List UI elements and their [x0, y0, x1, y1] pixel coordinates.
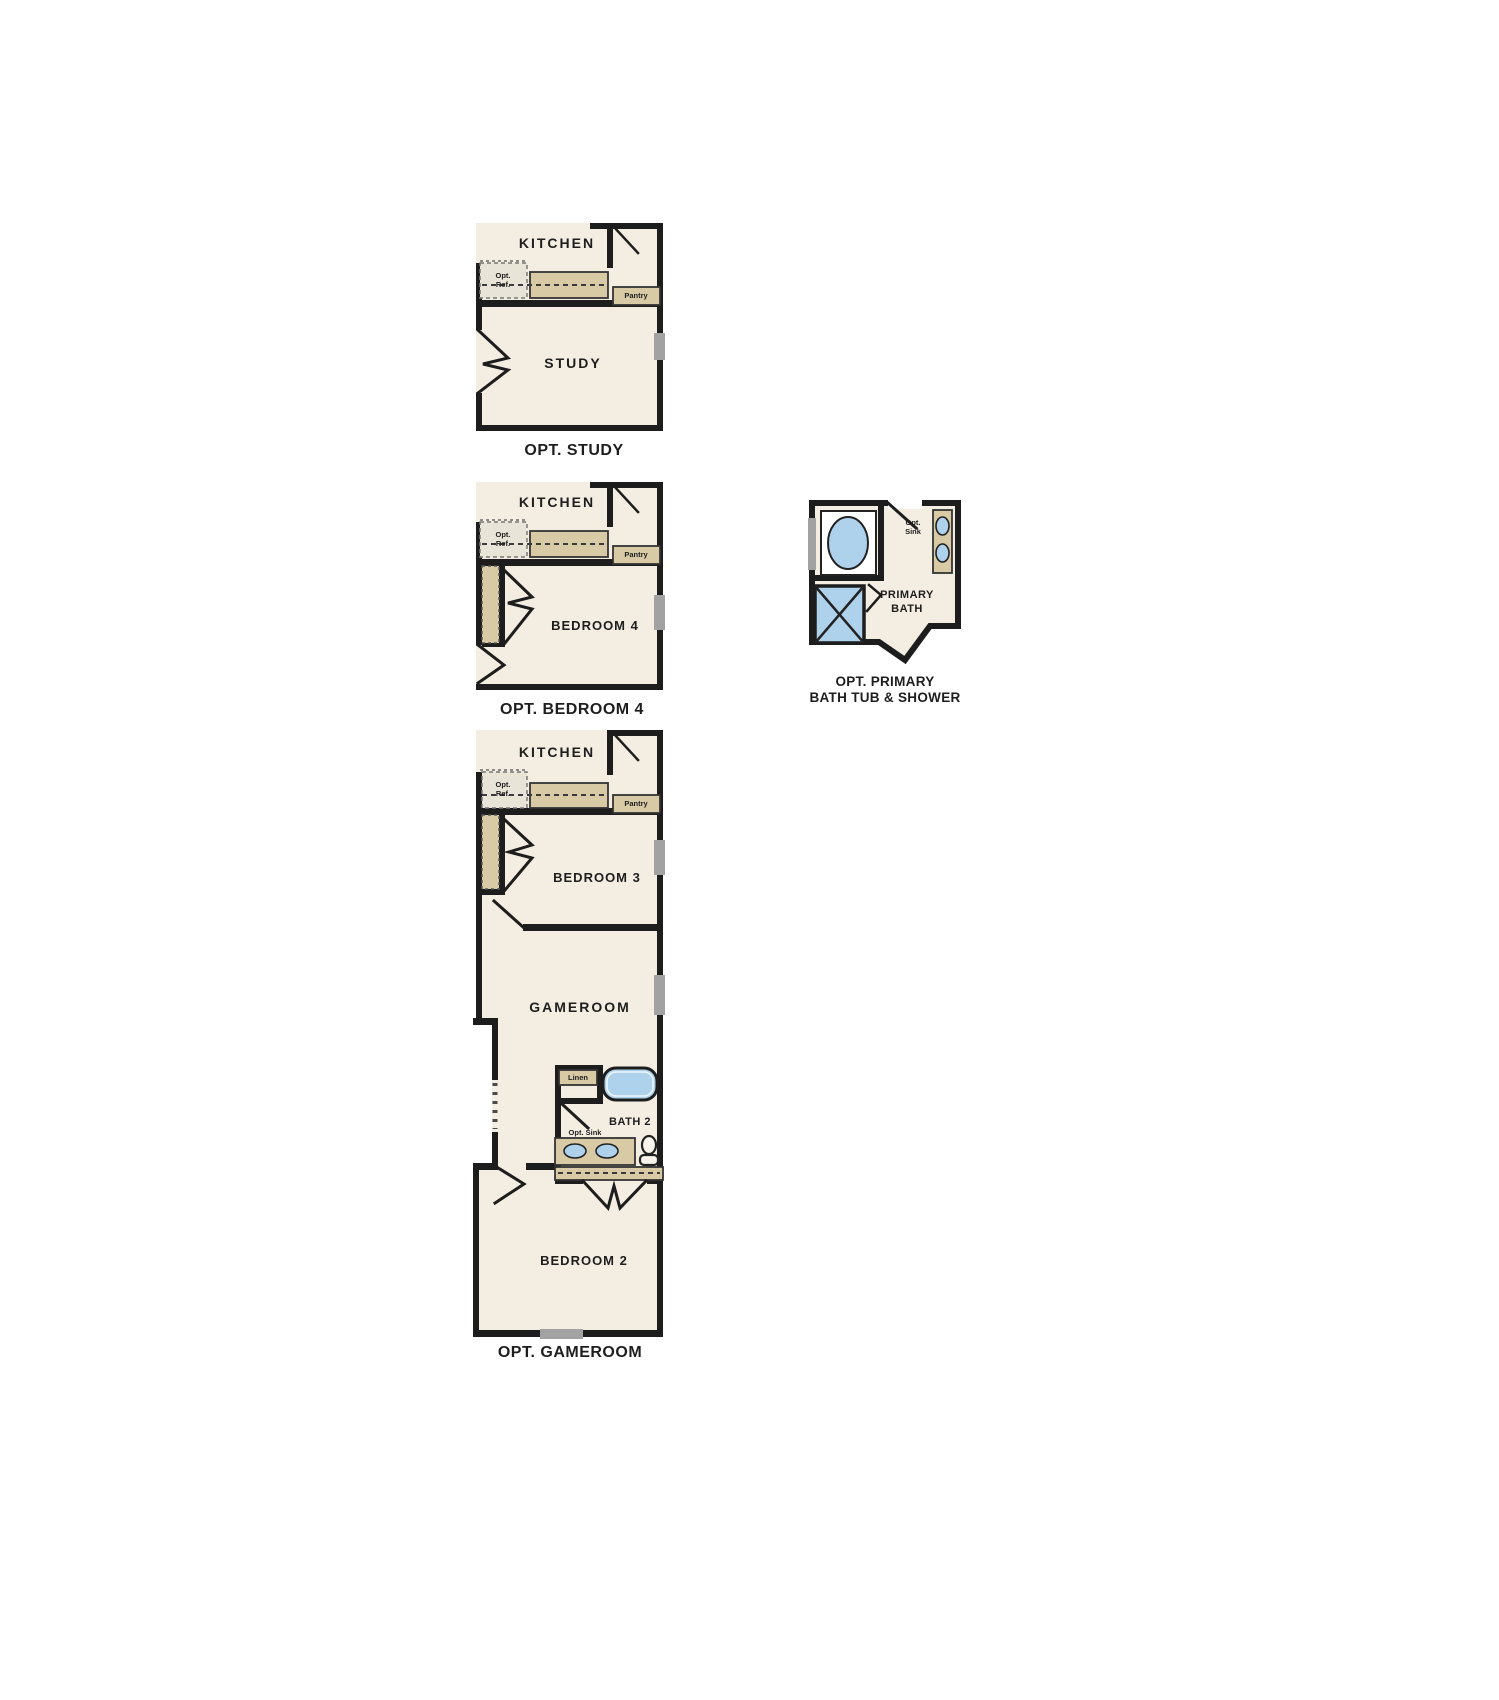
- linen-label: Linen: [568, 1073, 588, 1082]
- opt-sink-label-line1: Opt.: [906, 518, 921, 527]
- toilet-tank: [640, 1155, 658, 1165]
- plan-caption: OPT. BEDROOM 4: [500, 701, 644, 718]
- bedroom2-label: BEDROOM 2: [540, 1253, 628, 1268]
- primary-bath-label-line1: PRIMARY: [880, 589, 934, 601]
- kitchen-label: KITCHEN: [519, 744, 595, 760]
- study-label: STUDY: [544, 355, 601, 371]
- plan-opt-bedroom4: KITCHEN Opt. Ref. Pantry BEDROOM 4 OPT. …: [470, 477, 682, 737]
- pantry-label: Pantry: [624, 799, 648, 808]
- kitchen-counter: [530, 783, 608, 808]
- bedroom3-label: BEDROOM 3: [553, 870, 641, 885]
- kitchen-counter: [530, 272, 608, 298]
- floor: [476, 223, 663, 431]
- bath2-label: BATH 2: [609, 1116, 651, 1128]
- kitchen-counter: [530, 531, 608, 557]
- floorplan-options-sheet: KITCHEN Opt. Ref. Pantry STUDY OPT. STUD…: [0, 0, 1499, 1700]
- pantry-label: Pantry: [624, 291, 648, 300]
- sink: [564, 1144, 586, 1158]
- closet-shelf: [482, 566, 499, 643]
- window: [654, 840, 665, 875]
- toilet-bowl: [642, 1136, 656, 1154]
- bedroom4-label: BEDROOM 4: [551, 618, 639, 633]
- opt-sink-label: Opt. Sink: [569, 1128, 603, 1137]
- plan-caption: OPT. GAMEROOM: [498, 1344, 642, 1361]
- opt-ref-label-line1: Opt.: [496, 530, 511, 539]
- pantry-label: Pantry: [624, 550, 648, 559]
- opt-ref-label-line1: Opt.: [496, 780, 511, 789]
- plan-caption-line2: BATH TUB & SHOWER: [809, 690, 960, 705]
- plan-opt-study: KITCHEN Opt. Ref. Pantry STUDY OPT. STUD…: [470, 218, 682, 468]
- bathtub-basin: [828, 517, 868, 569]
- window: [808, 518, 816, 570]
- sink: [936, 544, 949, 562]
- plan-opt-primary-bath: Opt. Sink PRIMARY BATH OPT. PRIMARY BATH…: [800, 498, 980, 713]
- floor-notch: [470, 1025, 492, 1163]
- plan-caption: OPT. STUDY: [524, 442, 623, 459]
- sink: [936, 517, 949, 535]
- opt-sink-label-line2: Sink: [905, 527, 922, 536]
- gameroom-label: GAMEROOM: [529, 999, 631, 1015]
- window: [654, 333, 665, 360]
- opt-ref-label-line1: Opt.: [496, 271, 511, 280]
- opt-ref-label-line2: Ref.: [496, 539, 510, 548]
- primary-bath-label-line2: BATH: [891, 603, 923, 615]
- closet-shelf: [482, 815, 499, 889]
- kitchen-label: KITCHEN: [519, 494, 595, 510]
- plan-caption-line1: OPT. PRIMARY: [835, 674, 934, 689]
- sink: [596, 1144, 618, 1158]
- plan-opt-gameroom: KITCHEN Opt. Ref. Pantry BEDROOM 3 GAMER…: [470, 725, 682, 1375]
- window: [654, 975, 665, 1015]
- window: [540, 1329, 583, 1339]
- kitchen-label: KITCHEN: [519, 235, 595, 251]
- opt-ref-label-line2: Ref.: [496, 789, 510, 798]
- window: [654, 595, 665, 630]
- opt-ref-label-line2: Ref.: [496, 280, 510, 289]
